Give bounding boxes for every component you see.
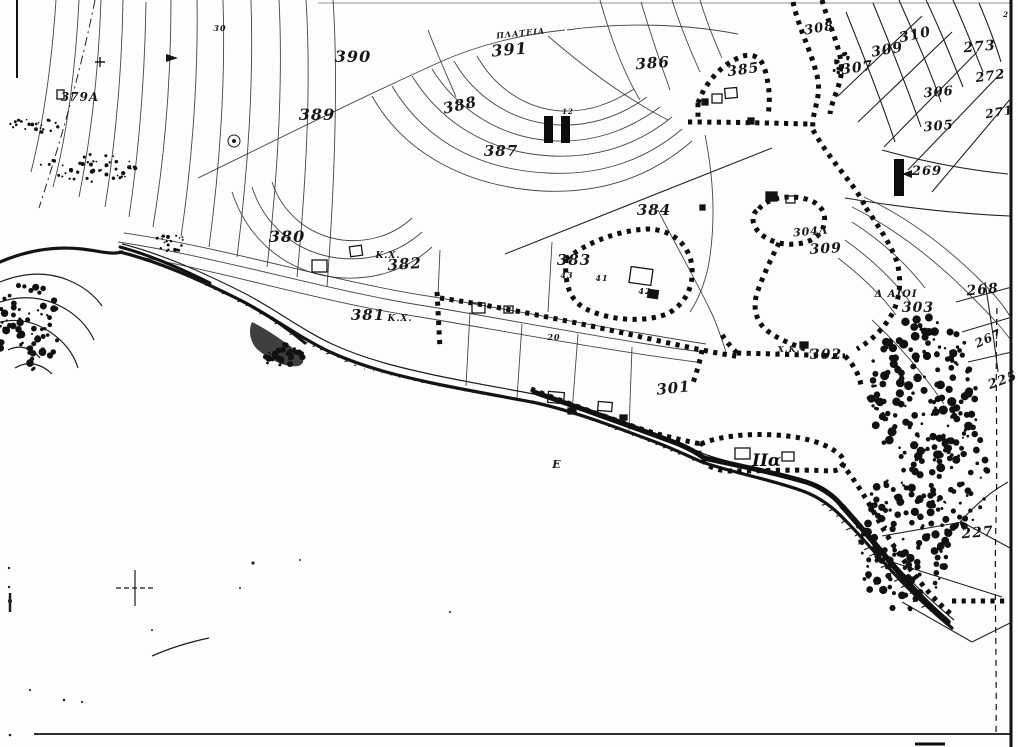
map-label-272: 272 [974, 67, 1007, 86]
map-label-309: 309 [809, 240, 842, 258]
sheet-frame [17, 0, 1011, 747]
map-label-388: 388 [441, 93, 478, 118]
map-label-391: 391 [491, 38, 529, 60]
map-label-382: 382 [387, 254, 422, 274]
scanned-map-sheet: 390391ΠΛΑΤΕΙΑ389388387386385379A380K.X.3… [0, 0, 1018, 747]
map-label-302: 302 [810, 347, 842, 363]
map-label-386: 386 [635, 53, 670, 73]
map-labels: 390391ΠΛΑΤΕΙΑ389388387386385379A380K.X.3… [61, 10, 1018, 542]
map-label-380: 380 [269, 227, 305, 246]
map-label-225: 225 [985, 369, 1018, 394]
cross-mark [95, 57, 105, 67]
map-label-δ-αιοι: Δ ΑΙΟΙ [873, 289, 917, 300]
vegetation-clusters [0, 52, 990, 612]
building [782, 452, 794, 461]
building [620, 415, 627, 420]
map-label-20: 20 [546, 332, 560, 342]
map-label-307: 307 [840, 58, 874, 78]
coastline-main [120, 252, 952, 628]
map-label-304λ: 304Λ [792, 223, 828, 239]
map-label-267: 267 [972, 326, 1004, 351]
map-label-e: E [551, 458, 561, 471]
misc-marks [8, 54, 912, 736]
map-label-41: 41 [595, 273, 608, 283]
well-symbol-dot [232, 139, 236, 143]
arrow-mark [166, 54, 178, 62]
zone-markers: IIα [544, 116, 904, 471]
building [312, 260, 327, 272]
stray-curve [152, 638, 209, 656]
building [349, 245, 362, 257]
map-label-385: 385 [726, 60, 760, 80]
building [725, 87, 738, 98]
buildings [57, 87, 808, 461]
map-label-303: 303 [902, 300, 934, 316]
building [712, 94, 722, 103]
map-label-383: 383 [557, 251, 591, 269]
coastline [0, 244, 954, 628]
map-label-227: 227 [960, 524, 995, 543]
map-label-305: 305 [923, 118, 954, 136]
map-label-273: 273 [962, 38, 997, 57]
shore-wall-bands [120, 247, 948, 622]
map-label-389: 389 [299, 105, 335, 124]
map-label-χ-κ-: Χ.Κ. [777, 344, 801, 354]
building [702, 99, 708, 105]
map-label-390: 390 [335, 47, 371, 66]
map-label-268: 268 [965, 281, 1000, 300]
map-label-381: 381 [351, 306, 385, 324]
building [700, 205, 705, 210]
building [735, 448, 750, 459]
map-label-12: 12 [562, 107, 574, 116]
building [598, 401, 613, 411]
zone-marker-iia: IIα [751, 451, 781, 471]
zone-marker-i [894, 159, 904, 196]
zone-marker-ii [544, 116, 570, 143]
map-label-308: 308 [803, 19, 835, 39]
map-canvas: 390391ΠΛΑΤΕΙΑ389388387386385379A380K.X.3… [0, 0, 1018, 747]
map-label-310: 310 [898, 24, 933, 46]
map-label-42: 42 [638, 286, 651, 296]
map-label-30: 30 [213, 23, 226, 33]
map-label-384: 384 [637, 201, 671, 219]
frame-right-inner-line [995, 308, 997, 736]
map-label-387: 387 [484, 142, 518, 160]
building [800, 342, 808, 348]
map-label-301: 301 [655, 377, 691, 398]
shore-rock-hatching [118, 252, 938, 616]
map-label-k-x-: K.X. [386, 314, 412, 324]
map-label-306: 306 [923, 84, 954, 102]
map-label-21: 21 [1002, 10, 1015, 19]
sea-specks [8, 559, 451, 736]
map-label-379a: 379A [61, 90, 99, 104]
building [748, 118, 754, 124]
building [568, 408, 576, 414]
map-label-269: 269 [911, 164, 942, 179]
building [766, 192, 777, 201]
building [629, 267, 653, 286]
map-label-43: 43 [560, 270, 573, 280]
